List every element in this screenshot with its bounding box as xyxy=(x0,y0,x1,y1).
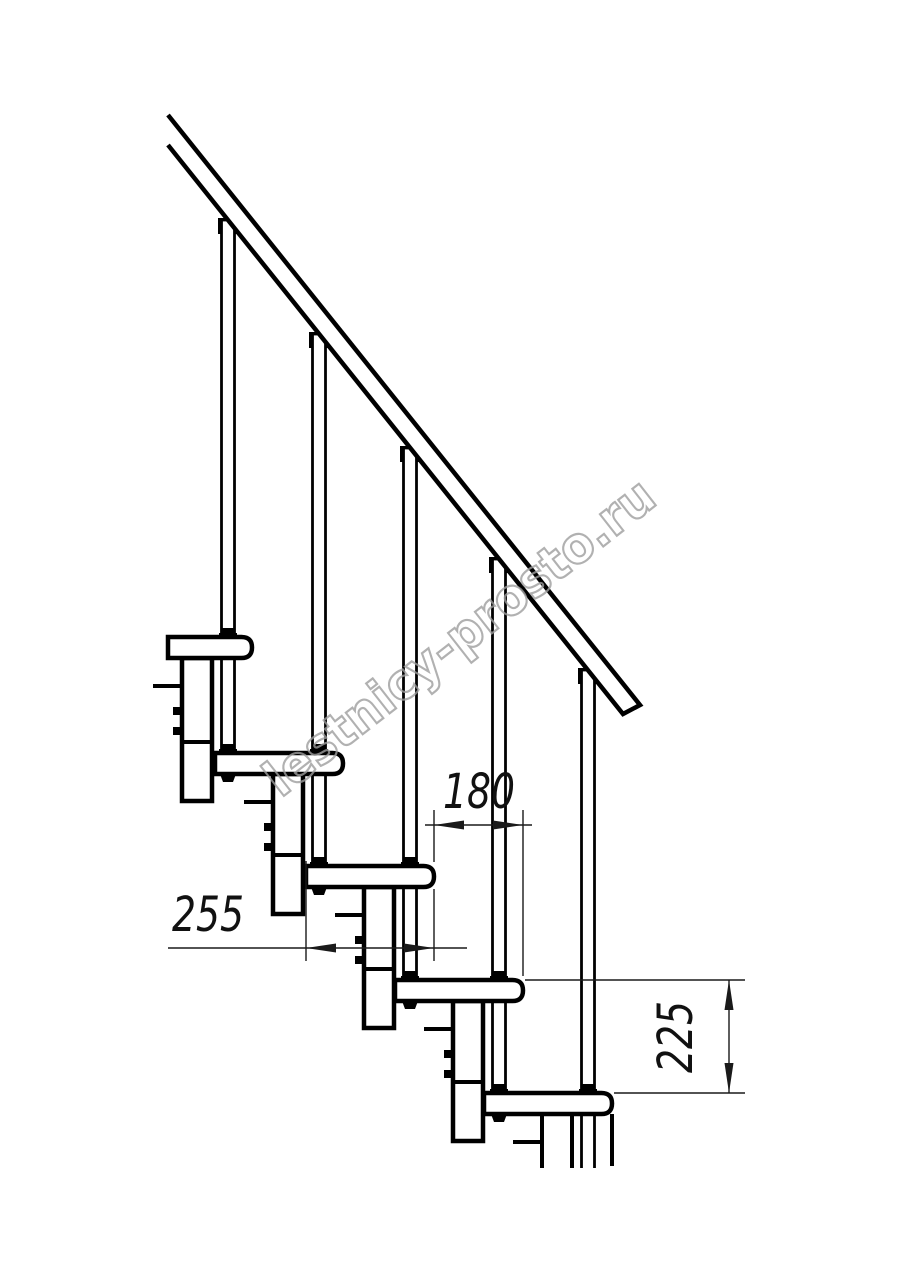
tread-5 xyxy=(484,1093,612,1114)
arrow-down-icon xyxy=(725,1063,734,1093)
column-1 xyxy=(153,658,212,801)
arrow-left-icon xyxy=(434,821,464,830)
dimension-label-225: 225 xyxy=(648,1001,704,1073)
column-3 xyxy=(335,887,394,1028)
arrow-right-icon xyxy=(493,821,523,830)
modular-staircase-side-view: 180 255 225 lestnicy-prosto.ru xyxy=(0,0,914,1280)
dimension-riser-height: 225 xyxy=(525,980,745,1093)
dimension-step-run: 180 xyxy=(425,764,532,976)
arrow-left-icon xyxy=(306,944,336,953)
column-4 xyxy=(424,1001,483,1141)
tread-4 xyxy=(395,980,523,1001)
dimension-label-180: 180 xyxy=(443,764,515,820)
tread-1 xyxy=(168,637,252,658)
column-5 xyxy=(513,1114,572,1168)
arrow-up-icon xyxy=(725,980,734,1010)
tread-3 xyxy=(306,866,434,887)
stair-drawing-page: 180 255 225 lestnicy-prosto.ru xyxy=(0,0,914,1280)
baluster-1 xyxy=(218,218,238,753)
arrow-right-icon xyxy=(404,944,434,953)
dimension-label-255: 255 xyxy=(172,887,244,943)
